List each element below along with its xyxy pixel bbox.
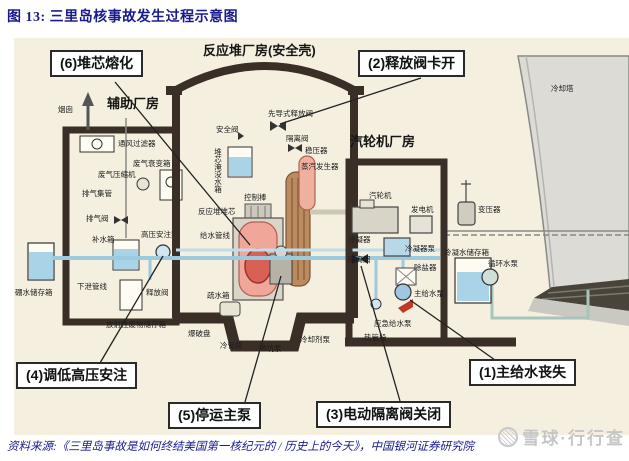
figure-page: 图 13: 三里岛核事故发生过程示意图 冷却塔 烟囱: [0, 0, 629, 461]
label-building-reactor: 反应堆厂房(安全壳): [203, 43, 316, 58]
label-transformer: 变压器: [478, 204, 501, 214]
label-rupture-disk: 爆破盘: [188, 328, 211, 338]
boron-tank-water: [29, 252, 53, 279]
label-isolation-valve-containment: 隔离阀: [286, 133, 309, 143]
dome-flange-left: [166, 86, 182, 95]
steam-turbine-body: [352, 207, 398, 233]
label-makeup-tank: 补水箱: [92, 234, 115, 244]
label-reactor-core: 反应堆堆芯: [198, 206, 236, 216]
drain-tank: [220, 302, 240, 316]
label-cooling-tower: 冷却塔: [551, 83, 574, 93]
label-exhaust-header: 排气集管: [82, 188, 112, 198]
label-emergency-feed-pump: 应急给水泵: [374, 318, 412, 328]
label-isolation-valve-turbine: 隔离阀: [348, 254, 371, 264]
figure-title: 图 13: 三里岛核事故发生过程示意图: [7, 6, 238, 26]
waste-gas-compressor: [137, 178, 149, 190]
label-coolant-pump: 冷却剂泵: [300, 334, 330, 344]
watermark-text: 雪球·行行查: [522, 424, 625, 449]
generator-body: [410, 216, 432, 233]
label-main-feed-pump: 主给水泵: [414, 288, 444, 298]
label-building-turbine: 汽轮机厂房: [350, 134, 415, 149]
label-sump-pump: 地坑泵: [259, 343, 282, 353]
label-radwaste-tank: 放射性废物储存箱: [106, 319, 166, 329]
reactor-core-melt: [245, 249, 271, 283]
core-flood-tank-water: [229, 157, 251, 176]
callout-6-core-meltdown: (6)堆芯熔化: [50, 50, 143, 77]
label-condensate-tank: 冷凝水储存箱: [444, 247, 489, 257]
label-waste-gas-compressor: 废气压缩机: [98, 169, 136, 179]
label-drain-tank: 疏水箱: [207, 290, 230, 300]
turbine-casing: [360, 200, 374, 208]
label-waste-gas-decay-tank: 废气衰变箱: [133, 158, 171, 168]
label-condenser-pump: 冷凝器泵: [405, 243, 435, 253]
label-pilot-relief-valve: 先导式释放阀: [268, 108, 313, 118]
radwaste-tank: [120, 280, 142, 310]
callout-3-isolation-valve-closed: (3)电动隔离阀关闭: [316, 401, 451, 428]
callout-2-relief-valve-stuck: (2)释放阀卡开: [358, 50, 465, 77]
callout-4-hpi-throttled: (4)调低高压安注: [16, 362, 137, 389]
label-steam-generator: 蒸汽发生器: [301, 161, 339, 171]
label-demineralizer: 除盐器: [414, 262, 437, 272]
main-feed-pump-body: [395, 284, 411, 300]
dome-flange-right: [348, 86, 364, 95]
watermark: 雪球·行行查: [498, 424, 625, 449]
callout-1-feedwater-lost: (1)主给水丧失: [469, 359, 576, 386]
label-release-valve: 释放阀: [146, 287, 169, 297]
label-control-rods: 控制棒: [244, 192, 267, 202]
label-boron-tank: 硼水储存箱: [15, 287, 53, 297]
label-cold-leg: 冷管段: [220, 340, 243, 350]
label-letdown-line: 下泄管线: [77, 281, 107, 291]
label-chimney: 烟囱: [58, 104, 73, 114]
label-hot-leg: 热管段: [364, 332, 387, 342]
label-pressurizer: 稳压器: [305, 145, 328, 155]
label-steam-turbine: 汽轮机: [369, 190, 392, 200]
label-condenser: 冷凝器: [348, 234, 371, 244]
transformer-body: [458, 202, 475, 225]
label-generator: 发电机: [411, 204, 434, 214]
vent-filter: [80, 136, 114, 152]
callout-5-main-pump-stopped: (5)停运主泵: [168, 402, 261, 429]
label-core-flood-tank: 堆芯淹没水箱: [213, 147, 222, 195]
circulating-pump-body: [482, 269, 498, 285]
label-feedwater-line: 给水管线: [200, 230, 230, 240]
label-safety-valve: 安全阀: [216, 124, 239, 134]
label-circulating-pump: 循环水泵: [488, 258, 518, 268]
label-exhaust-valve: 排气阀: [86, 213, 109, 223]
label-vent-filter: 通风过滤器: [118, 138, 156, 148]
watermark-logo-icon: [498, 427, 518, 447]
